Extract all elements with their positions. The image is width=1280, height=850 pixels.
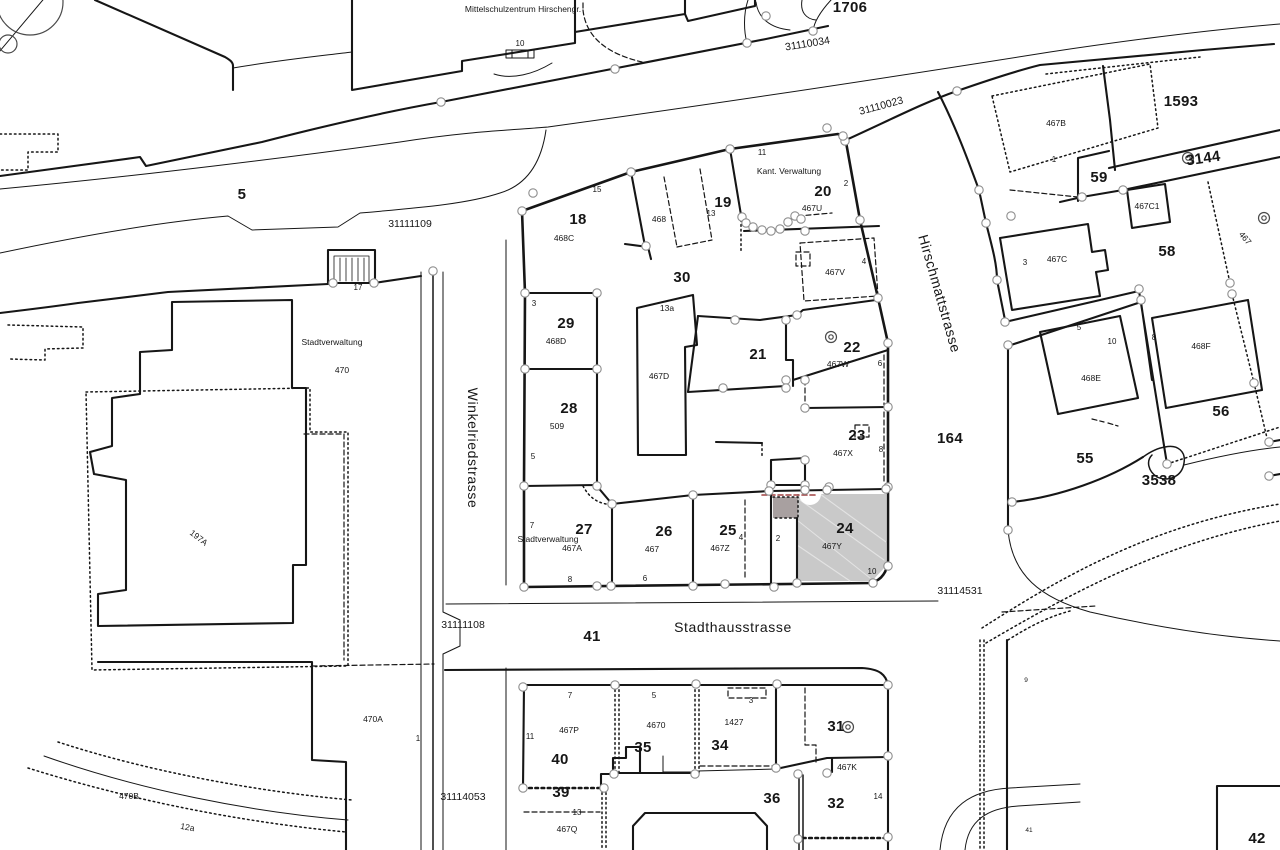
- map-label: 31: [827, 718, 844, 735]
- building-467B-dashed: [1010, 190, 1078, 197]
- survey-point: [627, 168, 635, 176]
- building-468E-dashes: [1092, 419, 1118, 426]
- survey-point: [719, 384, 727, 392]
- benchmark-point: [829, 335, 833, 339]
- map-label: 10: [1108, 337, 1117, 346]
- map-label: 11: [526, 732, 535, 741]
- survey-point: [329, 279, 337, 287]
- survey-point: [869, 579, 877, 587]
- junction-dotted-arc: [1008, 611, 1070, 640]
- map-label: 467C: [1047, 254, 1067, 264]
- benchmark-point: [1259, 213, 1270, 224]
- building-bottom-center: [633, 813, 767, 850]
- map-label: 8: [1152, 333, 1157, 342]
- survey-point: [884, 339, 892, 347]
- survey-point: [1250, 379, 1258, 387]
- map-label: 41: [1025, 827, 1033, 834]
- map-label: 470A: [363, 714, 383, 724]
- benchmark-point: [1262, 216, 1266, 220]
- survey-point: [884, 833, 892, 841]
- structure-17: [328, 250, 375, 283]
- north-arrow-circle-small: [0, 35, 17, 53]
- map-label: 59: [1090, 169, 1107, 186]
- map-label: 21: [749, 346, 766, 363]
- map-label: 467: [645, 544, 659, 554]
- map-label: 30: [673, 269, 690, 286]
- survey-point: [823, 769, 831, 777]
- parcel-23-dashed: [805, 355, 884, 484]
- tram-dotted-pair: [982, 504, 1280, 643]
- survey-point: [1004, 526, 1012, 534]
- survey-point: [519, 683, 527, 691]
- survey-point: [521, 289, 529, 297]
- survey-point: [607, 582, 615, 590]
- parcel-31-dashed: [805, 688, 816, 762]
- survey-point: [784, 218, 792, 226]
- map-label: 4: [862, 257, 867, 266]
- map-label: 468E: [1081, 373, 1101, 383]
- map-label: 7: [530, 521, 535, 530]
- map-label: 467V: [825, 267, 845, 277]
- survey-point: [782, 384, 790, 392]
- map-label: 509: [550, 421, 564, 431]
- map-label: 1706: [833, 0, 868, 16]
- survey-point: [762, 12, 770, 20]
- survey-point: [801, 486, 809, 494]
- map-canvas: Mittelschulzentrum Hirschengr.1706311100…: [0, 0, 1280, 850]
- map-label: 8: [568, 575, 573, 584]
- map-label: 10: [868, 567, 877, 576]
- se-plaza-curves: [940, 784, 1080, 850]
- map-label: 3: [532, 299, 537, 308]
- survey-point: [610, 770, 618, 778]
- survey-point: [1265, 472, 1273, 480]
- map-label: Winkelriedstrasse: [465, 388, 481, 509]
- map-label: 56: [1212, 403, 1229, 420]
- map-label: 467P: [559, 725, 579, 735]
- school-parcel-west: [95, 0, 233, 90]
- top-road-edge: [0, 26, 828, 176]
- benchmark-point: [826, 332, 837, 343]
- street5-south-edge: [0, 130, 546, 253]
- stadthaus-north-sidewalk: [446, 601, 938, 604]
- survey-point: [608, 500, 616, 508]
- map-label: 467C1: [1134, 201, 1159, 211]
- map-label: 467W: [827, 359, 849, 369]
- top-road-south-edge: [0, 24, 1280, 189]
- map-label: 36: [763, 790, 780, 807]
- building-468F: [1152, 300, 1262, 408]
- map-label: 1593: [1164, 93, 1199, 110]
- survey-point: [692, 680, 700, 688]
- map-label: 470: [335, 365, 349, 375]
- map-label: 31111108: [441, 619, 485, 631]
- survey-point: [982, 219, 990, 227]
- survey-point: [600, 784, 608, 792]
- map-label: 11: [758, 148, 767, 157]
- survey-point: [1226, 279, 1234, 287]
- cadastral-map: Mittelschulzentrum Hirschengr.1706311100…: [0, 0, 1280, 850]
- map-label: 6: [643, 574, 648, 583]
- map-label: 3538: [1142, 472, 1177, 489]
- survey-point: [793, 579, 801, 587]
- survey-point: [1001, 318, 1009, 326]
- map-label: 31114053: [440, 791, 485, 803]
- survey-point: [884, 752, 892, 760]
- map-label: 468C: [554, 233, 574, 243]
- parcel-470A-dashed: [312, 664, 434, 666]
- survey-point: [1228, 290, 1236, 298]
- map-label: 29: [557, 315, 574, 332]
- roads-layer: [0, 0, 1280, 850]
- map-label: 5: [1077, 323, 1082, 332]
- parcel-34-dashed-box: [700, 688, 775, 766]
- parcel-1593-west: [1103, 66, 1115, 170]
- map-label: 468F: [1191, 341, 1210, 351]
- survey-point: [770, 583, 778, 591]
- map-label: 31110034: [784, 35, 831, 54]
- north-arrow-circle: [0, 0, 63, 35]
- map-label: 164: [937, 430, 963, 447]
- survey-point: [794, 770, 802, 778]
- survey-point: [874, 294, 882, 302]
- map-label: 12a: [180, 821, 196, 833]
- survey-point: [773, 680, 781, 688]
- survey-point: [593, 365, 601, 373]
- survey-point: [801, 227, 809, 235]
- south-block-layer: [445, 601, 938, 850]
- map-label: Hirschmattstrasse: [915, 233, 964, 355]
- map-label: 20: [814, 183, 831, 200]
- map-label: 467K: [837, 762, 857, 772]
- map-label: 58: [1158, 243, 1175, 260]
- map-label: 7: [568, 691, 573, 700]
- survey-point: [721, 580, 729, 588]
- survey-point: [529, 189, 537, 197]
- map-label: 39: [552, 784, 569, 801]
- map-label: 28: [560, 400, 577, 417]
- map-label: 24: [836, 520, 854, 537]
- map-label: 2: [776, 534, 781, 543]
- map-label: 4670: [647, 720, 666, 730]
- map-label: 467D: [649, 371, 669, 381]
- survey-point: [801, 456, 809, 464]
- survey-point: [772, 764, 780, 772]
- survey-point: [519, 784, 527, 792]
- map-label: 3144: [1185, 148, 1222, 170]
- map-label: 13: [573, 808, 582, 817]
- survey-point: [593, 482, 601, 490]
- courtyard-lines: [716, 442, 805, 485]
- map-label: 3: [1023, 258, 1028, 267]
- winkelried-west-lane: [443, 272, 460, 850]
- left-block-lower: [98, 662, 346, 850]
- winkelried-layer: [421, 240, 506, 850]
- survey-point: [726, 145, 734, 153]
- survey-point: [370, 279, 378, 287]
- survey-point: [801, 404, 809, 412]
- survey-point: [1008, 498, 1016, 506]
- survey-point: [1163, 460, 1171, 468]
- map-label: 6: [878, 359, 883, 368]
- survey-point: [518, 207, 526, 215]
- survey-point: [1137, 296, 1145, 304]
- survey-point: [749, 223, 757, 231]
- upper-left-dotted: [0, 134, 83, 360]
- map-label: 467X: [833, 448, 853, 458]
- dotted-dividers: [602, 685, 699, 850]
- left-block-inner-dashed: [304, 434, 344, 660]
- map-label: 2: [844, 179, 849, 188]
- survey-point: [794, 835, 802, 843]
- map-label: 470B: [119, 791, 139, 801]
- map-label: Stadthausstrasse: [674, 619, 792, 635]
- map-label: 13a: [660, 303, 674, 313]
- map-label: 467Z: [710, 543, 729, 553]
- survey-point: [689, 491, 697, 499]
- road-3538-north-edge: [1184, 447, 1280, 465]
- map-label: 467Q: [557, 824, 578, 834]
- map-label: 41: [583, 628, 600, 645]
- map-label: 467U: [802, 203, 822, 213]
- survey-point: [782, 376, 790, 384]
- left-block-top: [0, 276, 421, 313]
- benchmark-point: [846, 725, 850, 729]
- ne-block-layer: [992, 64, 1280, 464]
- map-label: 8: [879, 445, 884, 454]
- survey-point: [882, 485, 890, 493]
- survey-point: [793, 311, 801, 319]
- map-label: 26: [655, 523, 672, 540]
- map-label: 19: [714, 194, 731, 211]
- map-label: 467: [1237, 229, 1254, 247]
- survey-point: [1004, 341, 1012, 349]
- parcel-24-subarea-fill: [773, 497, 798, 518]
- survey-point: [642, 242, 650, 250]
- survey-point: [689, 582, 697, 590]
- map-label: 22: [843, 339, 860, 356]
- survey-point: [611, 65, 619, 73]
- map-label: 9: [1024, 677, 1028, 684]
- survey-point: [1078, 193, 1086, 201]
- map-label: 35: [634, 739, 651, 756]
- map-label: 42: [1248, 830, 1265, 847]
- map-label: 1: [1052, 155, 1057, 164]
- map-label: 23: [848, 427, 865, 444]
- survey-point: [856, 216, 864, 224]
- parcel-23-top: [805, 407, 888, 408]
- map-label: 31111109: [388, 218, 432, 230]
- survey-point: [797, 215, 805, 223]
- survey-point: [520, 583, 528, 591]
- survey-point: [884, 681, 892, 689]
- parcel-21-west-south: [688, 316, 786, 392]
- map-label: 18: [569, 211, 586, 228]
- junction-ne-arc: [1008, 530, 1280, 641]
- map-label: 13: [707, 209, 716, 218]
- survey-point: [731, 316, 739, 324]
- building-470: [90, 300, 306, 626]
- survey-point: [593, 582, 601, 590]
- map-label: 5: [238, 186, 247, 203]
- south-block-outline: [523, 685, 888, 788]
- map-label: 4: [739, 533, 744, 542]
- map-label: 468: [652, 214, 666, 224]
- survey-point: [429, 267, 437, 275]
- map-label: 5: [531, 452, 536, 461]
- survey-point: [839, 132, 847, 140]
- survey-point: [743, 39, 751, 47]
- map-label: 1: [416, 734, 421, 743]
- map-label: 10: [516, 39, 525, 48]
- ne-block-top-dotted: [1046, 57, 1200, 74]
- survey-point: [884, 403, 892, 411]
- survey-point: [953, 87, 961, 95]
- survey-point: [801, 376, 809, 384]
- map-label: 467A: [562, 543, 582, 553]
- map-label: 467B: [1046, 118, 1066, 128]
- survey-point: [611, 681, 619, 689]
- school-parcel-south: [233, 52, 352, 68]
- building-467C: [1000, 224, 1108, 310]
- map-label: 55: [1076, 450, 1093, 467]
- building-467B-dotted: [992, 64, 1158, 172]
- map-label: 1427: [725, 717, 744, 727]
- survey-point: [776, 225, 784, 233]
- survey-point: [758, 226, 766, 234]
- survey-point: [520, 482, 528, 490]
- map-label: 31110023: [858, 94, 905, 117]
- survey-point: [437, 98, 445, 106]
- row-south-thin: [663, 756, 776, 772]
- map-label: Stadtverwaltung: [302, 337, 363, 347]
- map-label: Mittelschulzentrum Hirschengr.: [465, 4, 581, 14]
- building-468-dashed: [664, 169, 712, 247]
- map-label: 5: [652, 691, 657, 700]
- map-label: 40: [551, 751, 568, 768]
- survey-point: [884, 562, 892, 570]
- map-label: Kant. Verwaltung: [757, 166, 822, 176]
- survey-point: [823, 124, 831, 132]
- parcel-58-dotted-diagonal: [1208, 182, 1267, 438]
- map-labels-layer: Mittelschulzentrum Hirschengr.1706311100…: [119, 0, 1266, 847]
- survey-point: [823, 486, 831, 494]
- map-label: 14: [874, 792, 883, 801]
- survey-point: [1007, 212, 1015, 220]
- map-label: 34: [711, 737, 729, 754]
- map-label: 197A: [188, 528, 210, 548]
- map-label: 15: [593, 185, 602, 194]
- map-label: 32: [827, 795, 844, 812]
- survey-point: [521, 365, 529, 373]
- survey-point: [975, 186, 983, 194]
- survey-point: [765, 487, 773, 495]
- survey-point: [809, 27, 817, 35]
- bottom-left-dotted-curves: [28, 742, 352, 832]
- south-row-dividers: [612, 491, 771, 587]
- survey-point: [1135, 285, 1143, 293]
- school-canopy-dashed: [583, 2, 642, 62]
- survey-point: [1119, 186, 1127, 194]
- survey-point: [993, 276, 1001, 284]
- survey-point: [691, 770, 699, 778]
- survey-point: [1265, 438, 1273, 446]
- map-label: 25: [719, 522, 736, 539]
- map-label: 3: [749, 696, 754, 705]
- survey-point: [767, 227, 775, 235]
- survey-point: [593, 289, 601, 297]
- survey-point: [782, 316, 790, 324]
- map-label: 468D: [546, 336, 566, 346]
- map-label: 17: [354, 283, 363, 292]
- structure-17-stairs: [334, 256, 369, 283]
- map-label: 467Y: [822, 541, 842, 551]
- map-label: 31114531: [937, 585, 982, 597]
